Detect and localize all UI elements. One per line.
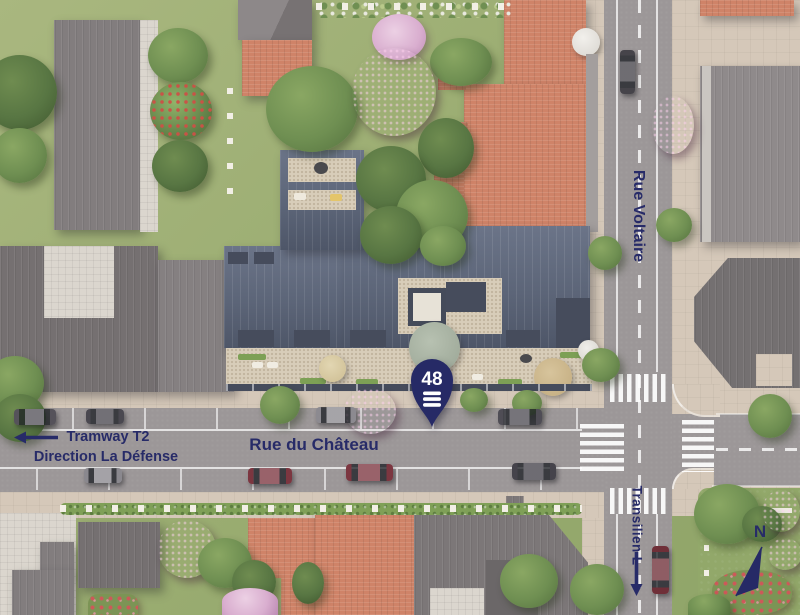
tram-direction-label: Direction La Défense bbox=[28, 449, 184, 465]
dormer bbox=[238, 330, 274, 347]
dormer bbox=[506, 330, 540, 347]
patio-umbrella bbox=[319, 355, 346, 382]
tree bbox=[688, 594, 730, 615]
flowering-tree bbox=[150, 82, 212, 140]
parked-car bbox=[86, 409, 124, 424]
location-pin-icon: 48 bbox=[406, 352, 458, 430]
fence bbox=[227, 88, 233, 200]
tree bbox=[292, 562, 324, 604]
rail-direction-arrow-down-icon bbox=[630, 550, 643, 596]
crosswalk bbox=[580, 424, 624, 472]
car bbox=[652, 546, 669, 594]
parked-car bbox=[316, 407, 356, 423]
building-side-wall bbox=[586, 54, 598, 232]
parked-car bbox=[248, 468, 292, 484]
tree bbox=[430, 38, 492, 86]
street-tree bbox=[656, 208, 692, 242]
crosswalk bbox=[682, 420, 714, 472]
dormer bbox=[350, 330, 386, 347]
parked-car bbox=[84, 468, 122, 483]
tree bbox=[266, 66, 358, 152]
tree bbox=[0, 128, 47, 183]
dormer bbox=[228, 252, 248, 264]
tram-direction-arrow-left-icon bbox=[14, 431, 60, 444]
tree bbox=[420, 226, 466, 266]
flowering-tree bbox=[222, 588, 278, 615]
terrace-furniture bbox=[294, 193, 306, 200]
tree bbox=[152, 140, 208, 192]
neighbor-building bbox=[238, 0, 312, 40]
courtyard bbox=[44, 246, 114, 318]
terrace-furniture bbox=[330, 194, 342, 201]
neighbor-building bbox=[54, 20, 140, 230]
neighbor-building bbox=[78, 522, 160, 588]
neighbor-building bbox=[700, 0, 794, 16]
street-tree bbox=[582, 348, 620, 382]
dormer bbox=[294, 330, 330, 347]
street-tree bbox=[260, 386, 300, 424]
street-label-rue-du-chateau: Rue du Château bbox=[238, 435, 390, 455]
dormer bbox=[254, 252, 274, 264]
lane-line bbox=[616, 0, 618, 372]
flowering-tree bbox=[352, 48, 436, 136]
courtyard-skylight bbox=[408, 288, 446, 326]
tree bbox=[0, 55, 57, 130]
neighbor-building bbox=[315, 506, 421, 615]
street-tree bbox=[570, 564, 624, 615]
pin-number: 48 bbox=[421, 369, 442, 390]
parked-car bbox=[498, 409, 542, 425]
fence bbox=[60, 505, 582, 512]
inner-courtyard bbox=[756, 354, 792, 386]
street-tree bbox=[460, 388, 488, 412]
neighbor-building bbox=[158, 260, 234, 392]
tram-line-label: Tramway T2 bbox=[52, 429, 164, 445]
neighbor-building bbox=[12, 570, 74, 615]
terrace-furniture bbox=[252, 362, 263, 368]
center-dash-line bbox=[716, 448, 800, 451]
lane-line bbox=[656, 0, 658, 372]
tree bbox=[148, 28, 208, 83]
crosswalk bbox=[610, 374, 668, 402]
aerial-site-plan: Rue du Château Rue Voltaire Tramway T2 D… bbox=[0, 0, 800, 615]
compass-north-label: N bbox=[748, 522, 772, 542]
fence bbox=[316, 3, 512, 10]
street-tree bbox=[588, 236, 622, 270]
neighbor-building bbox=[464, 84, 586, 232]
terrace-furniture bbox=[314, 162, 328, 174]
flower-bed bbox=[88, 594, 138, 615]
compass-needle-icon bbox=[732, 542, 766, 600]
flowering-tree bbox=[652, 96, 694, 154]
street-tree bbox=[748, 394, 792, 438]
planter bbox=[238, 354, 266, 360]
courtyard-structure bbox=[446, 282, 486, 312]
terrace-furniture bbox=[520, 354, 532, 363]
flowering-shrub bbox=[768, 538, 800, 570]
parked-car bbox=[346, 464, 393, 481]
terrace-furniture bbox=[267, 362, 278, 368]
street-tree bbox=[500, 554, 558, 608]
patio bbox=[430, 588, 484, 615]
neighbor-building bbox=[700, 66, 800, 242]
tree bbox=[360, 206, 422, 264]
roof-ridge bbox=[702, 66, 711, 242]
tree bbox=[418, 118, 474, 178]
parked-car bbox=[512, 463, 556, 480]
parked-car bbox=[14, 409, 56, 425]
car bbox=[620, 50, 635, 94]
terrace-furniture bbox=[472, 374, 483, 380]
street-label-rue-voltaire: Rue Voltaire bbox=[629, 164, 647, 268]
rooftop-silo bbox=[572, 28, 600, 56]
